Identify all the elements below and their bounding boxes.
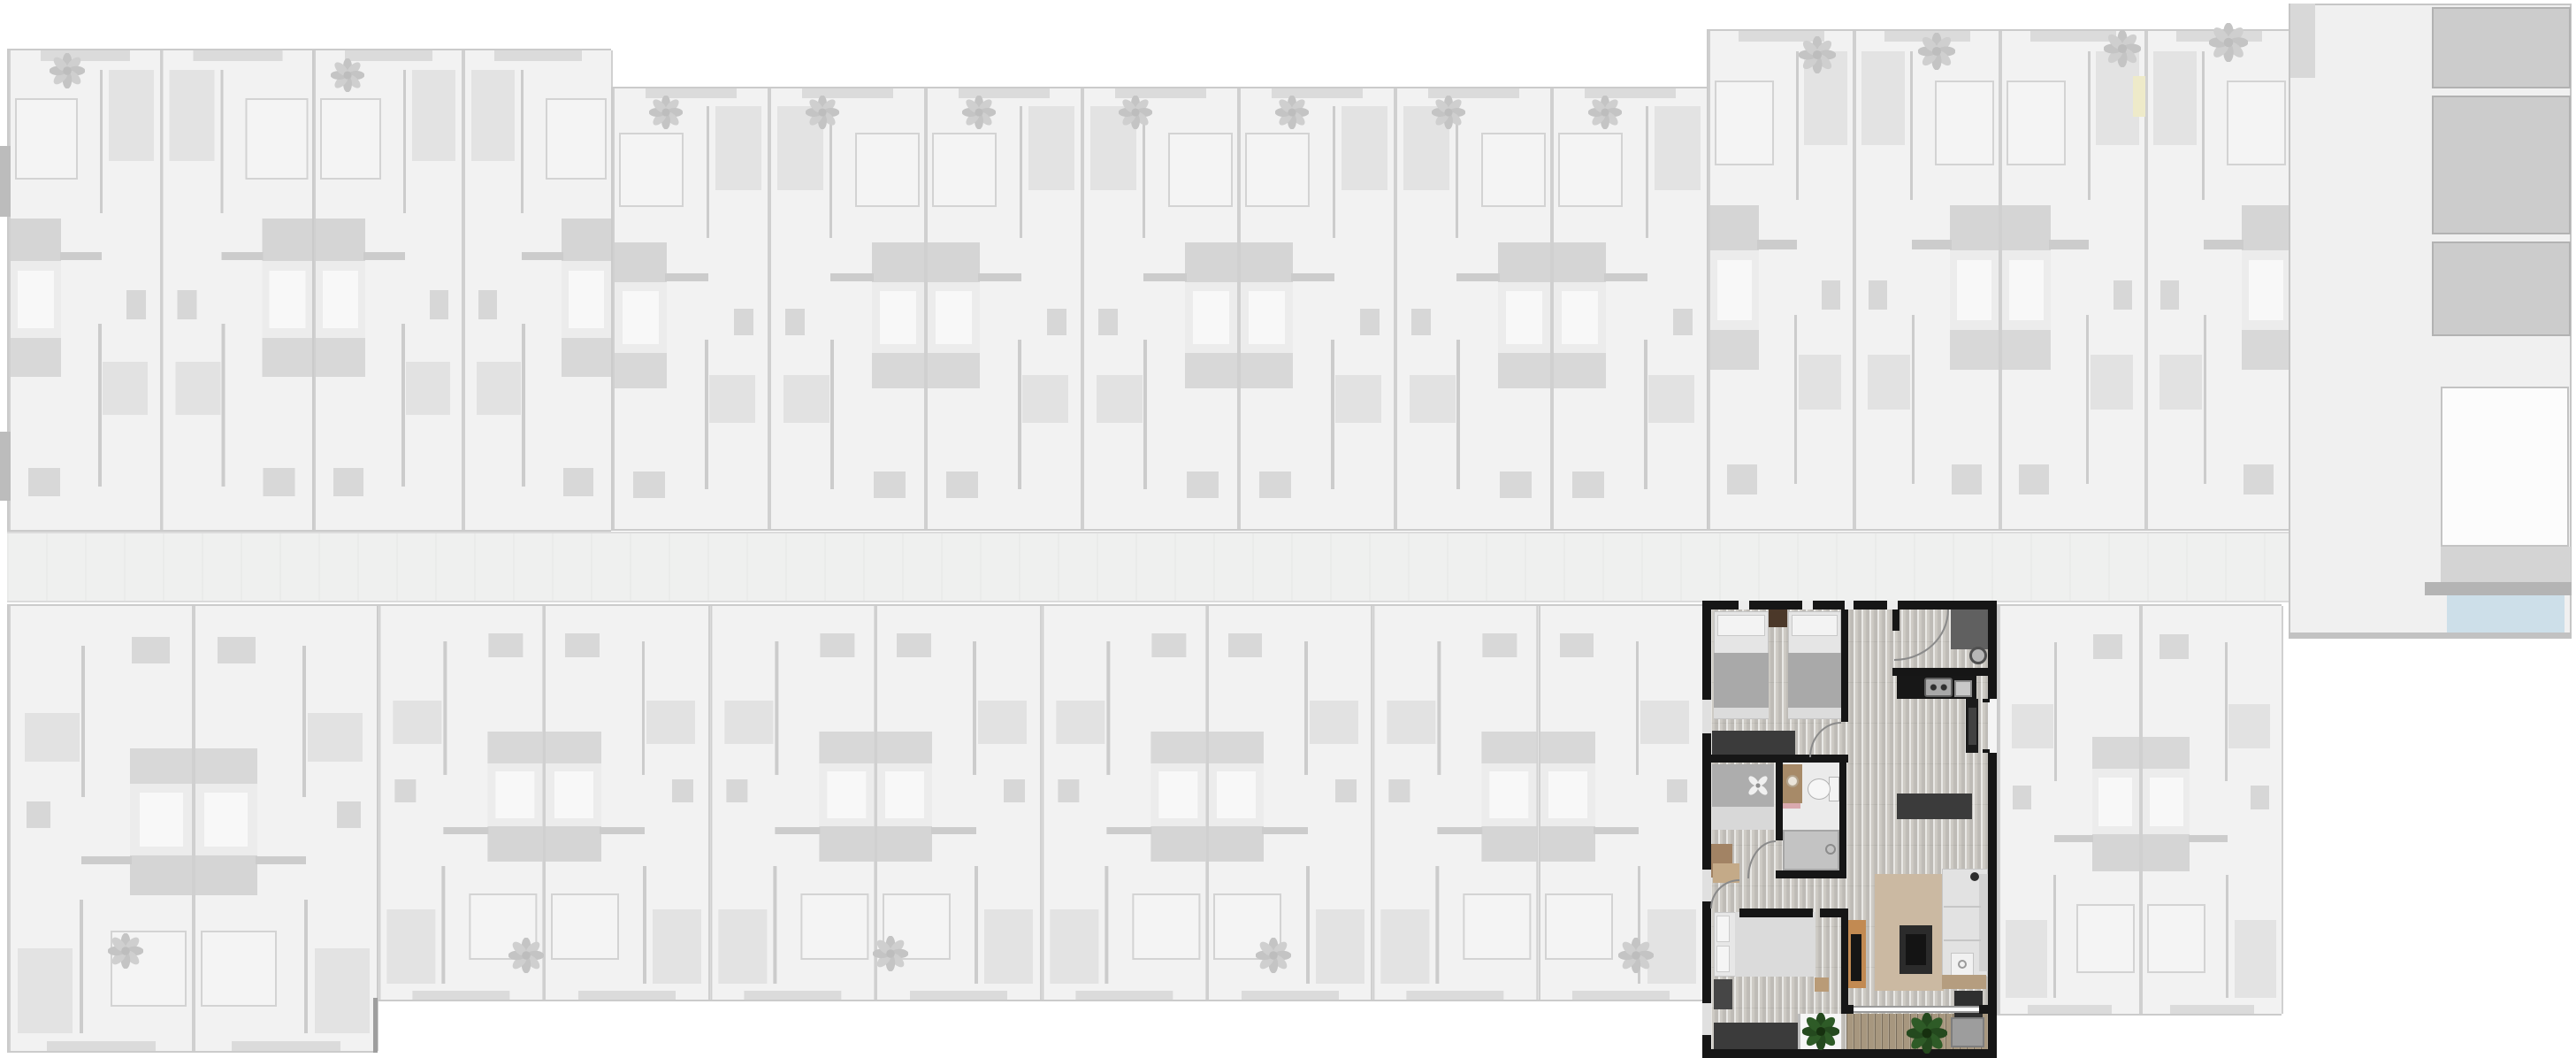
balcony-slider (1854, 1006, 1979, 1013)
faded-wall-v2 (1636, 641, 1640, 775)
faded-wall-v2 (1018, 340, 1020, 489)
edge-wall-dark (373, 998, 378, 1053)
faded-unit (1552, 88, 1708, 529)
faded-bed (169, 70, 214, 161)
bed-b-foot (1788, 708, 1841, 718)
faded-dresser (1150, 826, 1205, 862)
faded-cabinet (2242, 330, 2290, 370)
faded-fixture (395, 779, 417, 803)
faded-dresser (195, 855, 257, 895)
faded-wall-h (444, 827, 489, 834)
window-left-1 (1702, 700, 1711, 733)
faded-wall-h (931, 827, 976, 834)
faded-wall-v2 (1456, 340, 1459, 489)
faded-storage (563, 468, 594, 497)
faded-wall-v1 (304, 900, 308, 1033)
faded-balcony-edge (1572, 991, 1670, 1000)
faded-dresser (1710, 205, 1759, 250)
elevator-core-1 (2432, 7, 2571, 88)
faded-wall-v2 (1912, 315, 1915, 484)
wardrobe-2 (1714, 1023, 1800, 1049)
faded-wall-v2 (2086, 315, 2089, 484)
faded-wall-h (665, 273, 707, 281)
faded-wall-v2 (81, 646, 85, 797)
faded-wall-v1 (2226, 875, 2228, 997)
bed-b-blanket (1788, 653, 1841, 708)
faded-wall-h (830, 273, 873, 281)
faded-wall-v2 (98, 324, 101, 487)
faded-window-box (855, 133, 920, 208)
ledge-tab-1 (0, 146, 11, 217)
faded-window-box (1245, 133, 1310, 208)
faded-dresser (928, 242, 980, 282)
doormat (1951, 1017, 1984, 1047)
faded-wall-v1 (1333, 106, 1335, 238)
faded-storage (1952, 464, 1982, 494)
faded-unit (9, 606, 194, 1051)
faded-fixture (1869, 280, 1888, 310)
faded-wall-h (2049, 240, 2089, 249)
wall-right-lower (1988, 753, 1997, 1058)
faded-unit (2146, 31, 2292, 529)
soap-tray (1783, 803, 1800, 809)
shelf-tan (1942, 975, 1986, 989)
tray-glass (1958, 960, 1967, 969)
faded-bed-2-sheet (1489, 771, 1528, 818)
faded-wall-v1 (403, 70, 406, 214)
faded-bed (412, 70, 456, 161)
faded-balcony-edge (744, 991, 841, 1000)
faded-wall-h (1604, 273, 1647, 281)
faded-bed (715, 106, 761, 190)
faded-balcony-edge (910, 991, 1007, 1000)
wall-balcony-stub-r (1979, 1005, 1988, 1014)
faded-wall-v1 (1306, 866, 1310, 985)
faded-fixture (1673, 309, 1693, 335)
building-section-bottom-3 (1997, 604, 2282, 1016)
bench (1714, 979, 1732, 1009)
faded-storage (633, 471, 665, 498)
faded-fixture (177, 290, 196, 319)
faded-window-box (1481, 133, 1546, 208)
building-section-top-1 (7, 49, 312, 532)
faded-sofa (1387, 701, 1436, 744)
bed-a-foot (1714, 708, 1769, 718)
faded-unit (194, 606, 378, 1051)
accent-window-yellow (2133, 76, 2145, 117)
highlighted-unit[interactable] (1702, 601, 1997, 1058)
faded-plant-icon (1119, 96, 1152, 129)
wall-living-left (1841, 908, 1848, 1007)
faded-storage (821, 633, 855, 657)
faded-plant-icon (806, 96, 839, 129)
faded-bed-2-sheet (323, 271, 358, 328)
faded-bed (653, 909, 701, 985)
faded-storage (2019, 464, 2049, 494)
faded-bed (2006, 920, 2047, 998)
window-left-2 (1702, 870, 1711, 901)
faded-bed (1342, 106, 1387, 190)
faded-fixture (337, 801, 361, 828)
window-top-3 (1845, 601, 1854, 609)
sofa-back (1979, 874, 1988, 971)
faded-balcony-edge (413, 991, 510, 1000)
faded-wall-h (363, 252, 404, 261)
faded-bed-2-sheet (1548, 771, 1587, 818)
faded-cabinet (316, 338, 365, 376)
faded-bed-2-sheet (2098, 778, 2132, 826)
faded-wall-h (1757, 240, 1797, 249)
faded-dresser (615, 242, 667, 282)
faded-plant-icon (1588, 96, 1622, 129)
faded-bed-2-sheet (269, 271, 304, 328)
faded-wall-v2 (1794, 315, 1797, 484)
faded-storage (489, 633, 524, 657)
building-section-bottom-2 (377, 604, 1702, 1001)
faded-plant-icon (1256, 938, 1291, 973)
faded-wall-v2 (973, 641, 976, 775)
faded-cabinet (1554, 353, 1606, 388)
faded-dresser (1554, 242, 1606, 282)
faded-sofa (175, 362, 220, 415)
faded-bed (315, 948, 370, 1033)
faded-plant-icon (1799, 36, 1836, 73)
faded-storage (263, 468, 294, 497)
kitchen-sink (1954, 680, 1972, 697)
faded-building-layer (0, 0, 2576, 1058)
faded-fixture (2013, 786, 2030, 810)
faded-sofa (1022, 375, 1068, 424)
faded-bed (1655, 106, 1701, 190)
bedside-tan (1815, 977, 1829, 992)
faded-unit (162, 50, 315, 530)
faded-fixture (126, 290, 146, 319)
faded-unit (613, 88, 769, 529)
faded-sofa (646, 701, 695, 744)
faded-storage (28, 468, 59, 497)
faded-dresser (1540, 826, 1595, 862)
faded-unit (1854, 31, 2000, 529)
faded-bed-2-sheet (2150, 778, 2183, 826)
faded-dresser (487, 826, 542, 862)
window-top-4 (1887, 601, 1898, 609)
faded-cabinet (546, 732, 600, 763)
faded-dresser (562, 218, 611, 262)
faded-sofa (978, 701, 1027, 744)
wall-closet-right-a (1776, 763, 1783, 840)
faded-bed (471, 70, 516, 161)
faded-sofa (1799, 355, 1841, 410)
faded-wall-v1 (2053, 875, 2056, 997)
faded-wall-h (1594, 827, 1639, 834)
faded-cabinet (872, 353, 924, 388)
faded-unit (1082, 88, 1239, 529)
faded-window-box (932, 133, 997, 208)
patio-divider (1798, 1014, 1800, 1049)
amenity-room (2441, 387, 2569, 547)
faded-bed-2-sheet (1957, 260, 1991, 320)
faded-dresser (2002, 205, 2051, 250)
opening-tick-1 (1983, 699, 1990, 702)
faded-cabinet (1185, 353, 1237, 388)
faded-wall-h (2204, 240, 2243, 249)
faded-cabinet (562, 338, 611, 376)
faded-cabinet (1481, 732, 1536, 763)
balcony-plant-icon (1802, 1013, 1839, 1050)
faded-fixture (1098, 309, 1118, 335)
faded-cabinet (195, 748, 257, 784)
shower-head (1825, 844, 1836, 855)
faded-balcony-edge (1075, 991, 1173, 1000)
tower-notch (2290, 4, 2315, 78)
faded-unit (1239, 88, 1395, 529)
faded-unit (314, 50, 463, 530)
faded-window-box (1545, 893, 1613, 961)
faded-bed (1028, 106, 1074, 190)
faded-bed-2-sheet (204, 793, 248, 846)
faded-storage (897, 633, 931, 657)
faded-unit (1999, 606, 2141, 1014)
faded-cabinet (2002, 330, 2051, 370)
faded-sofa (709, 375, 755, 424)
faded-window-box (15, 98, 78, 180)
faded-bed-2-sheet (880, 291, 917, 344)
bed-2-pillow-1 (1716, 916, 1730, 942)
balcony-plant-icon (1907, 1013, 1947, 1054)
faded-unit (544, 606, 709, 1000)
faded-fixture (734, 309, 753, 335)
wall-bedroom2-top-a (1739, 908, 1813, 917)
faded-fixture (672, 779, 693, 803)
faded-bed-2-sheet (1506, 291, 1543, 344)
faded-bed (984, 909, 1033, 985)
building-section-top-2 (312, 49, 611, 532)
wall-right-upper (1988, 601, 1997, 699)
faded-wall-v2 (775, 641, 778, 775)
faded-wall-h (1912, 240, 1952, 249)
faded-window-box (2227, 80, 2287, 165)
faded-plant-icon (873, 936, 908, 971)
faded-sofa (308, 713, 363, 762)
faded-plant-icon (1275, 96, 1309, 129)
faded-wall-v2 (2204, 315, 2206, 484)
faded-dresser (130, 855, 192, 895)
faded-unit (1042, 606, 1207, 1000)
faded-plant-icon (1432, 96, 1465, 129)
building-section-top-4 (1707, 29, 2290, 531)
faded-wall-v1 (100, 70, 103, 214)
vanity-sink (1786, 775, 1799, 787)
faded-wall-h (978, 273, 1020, 281)
faded-dresser (1241, 242, 1293, 282)
faded-balcony-edge (1242, 991, 1339, 1000)
bed-a-pillow (1717, 615, 1765, 636)
faded-window-box (551, 893, 619, 961)
faded-wall-h (60, 252, 102, 261)
faded-bed-2-sheet (1193, 291, 1230, 344)
faded-cabinet (11, 338, 61, 376)
faded-bed (1861, 51, 1904, 146)
faded-wall-v2 (401, 324, 404, 487)
faded-bed-2-sheet (2249, 260, 2283, 320)
faded-wall-v1 (1105, 866, 1108, 985)
faded-storage (132, 637, 170, 663)
faded-cabinet (1710, 330, 1759, 370)
faded-wall-v2 (1106, 641, 1110, 775)
tv (1851, 934, 1861, 981)
faded-bed-2-sheet (2009, 260, 2044, 320)
faded-wall-v1 (220, 70, 223, 214)
faded-storage (1228, 633, 1263, 657)
faded-wall-v2 (1438, 641, 1441, 775)
faded-sofa (1868, 355, 1910, 410)
faded-balcony-edge (47, 1041, 156, 1051)
faded-cabinet (2143, 737, 2190, 770)
faded-wall-v2 (705, 340, 707, 489)
faded-storage (333, 468, 364, 497)
faded-bed-2-sheet (827, 771, 866, 818)
faded-dresser (546, 826, 600, 862)
window-top-1 (1739, 601, 1749, 609)
faded-bed (1647, 909, 1696, 985)
service-opening (1988, 699, 1997, 753)
faded-dresser (2143, 834, 2190, 870)
faded-dresser (872, 242, 924, 282)
faded-cabinet (262, 338, 312, 376)
faded-wall-h (2189, 835, 2228, 842)
faded-cabinet (130, 748, 192, 784)
faded-fixture (27, 801, 50, 828)
faded-storage (1572, 471, 1604, 498)
faded-fixture (726, 779, 747, 803)
sofa-seam-1 (1944, 906, 1981, 908)
faded-bed (1316, 909, 1364, 985)
faded-wall-h (1291, 273, 1334, 281)
faded-wall-v2 (642, 641, 646, 775)
corridor (7, 532, 2289, 602)
faded-storage (2243, 464, 2274, 494)
faded-wall-v1 (1020, 106, 1022, 238)
faded-storage (1727, 464, 1757, 494)
faded-dresser (2092, 834, 2139, 870)
wall-bath-right (1839, 763, 1846, 878)
faded-fixture (2114, 280, 2132, 310)
faded-window-box (1558, 133, 1623, 208)
stove (1924, 678, 1953, 697)
faded-sofa (1335, 375, 1381, 424)
faded-dresser (1950, 205, 1999, 250)
faded-fixture (1667, 779, 1688, 803)
faded-bed-2-sheet (1217, 771, 1256, 818)
window-left-3 (1702, 1003, 1711, 1035)
wall-entry (1892, 668, 1988, 676)
faded-storage (946, 471, 978, 498)
faded-bed-2-sheet (936, 291, 973, 344)
floorplan-canvas (0, 0, 2576, 1058)
faded-bed (2235, 920, 2276, 998)
faded-sofa (406, 362, 450, 415)
coffee-table-inner (1906, 934, 1926, 965)
faded-wall-v1 (1910, 51, 1913, 201)
faded-wall-h (1106, 827, 1151, 834)
faded-wall-h (1143, 273, 1186, 281)
faded-wall-v1 (1436, 866, 1440, 985)
faded-window-box (201, 931, 277, 1007)
faded-bed-2-sheet (885, 771, 924, 818)
faded-storage (565, 633, 600, 657)
faded-window-box (2076, 904, 2135, 973)
faded-window-box (245, 98, 308, 180)
faded-window-box (2007, 80, 2067, 165)
faded-dresser (262, 218, 312, 262)
faded-wall-h (1438, 827, 1483, 834)
faded-window-box (619, 133, 684, 208)
faded-unit (9, 50, 162, 530)
faded-cabinet (877, 732, 932, 763)
faded-window-box (1464, 893, 1532, 961)
faded-bed-2-sheet (1158, 771, 1197, 818)
window-top-2 (1802, 601, 1813, 609)
wall-left (1702, 601, 1711, 1058)
faded-wall-v2 (444, 641, 447, 775)
faded-window-box (546, 98, 607, 180)
faded-cabinet (487, 732, 542, 763)
faded-bed (109, 70, 154, 161)
faded-bed (386, 909, 435, 985)
faded-wall-h (1456, 273, 1499, 281)
bed-b-pillow (1792, 615, 1838, 636)
faded-sofa (2012, 704, 2053, 749)
faded-bed-2-sheet (18, 271, 53, 328)
faded-sofa (1097, 375, 1143, 424)
faded-balcony-edge (193, 50, 282, 61)
faded-storage (2093, 634, 2122, 659)
faded-balcony-edge (578, 991, 676, 1000)
wing-bottom-wall (2289, 632, 2572, 639)
faded-storage (1259, 471, 1291, 498)
faded-window-box (1168, 133, 1233, 208)
faded-bed-2-sheet (623, 291, 660, 344)
stair-core (2432, 241, 2571, 336)
faded-balcony-edge (494, 50, 582, 61)
faded-wall-v1 (707, 106, 709, 238)
faded-storage (2159, 634, 2189, 659)
faded-storage (1500, 471, 1532, 498)
faded-wall-h (1262, 827, 1307, 834)
faded-plant-icon (1918, 33, 1955, 70)
faded-fixture (1058, 779, 1079, 803)
wall-bath-bottom (1776, 870, 1846, 878)
building-section-top-3 (611, 87, 1707, 531)
faded-window-box (1132, 893, 1200, 961)
faded-unit (2141, 606, 2283, 1014)
opening-tick-2 (1983, 749, 1990, 753)
faded-wall-v2 (2225, 643, 2228, 782)
faded-cabinet (1241, 353, 1293, 388)
faded-bed-2-sheet (140, 793, 183, 846)
faded-unit (1372, 606, 1538, 1000)
faded-sofa (1310, 701, 1358, 744)
counter-strip-inner (1968, 708, 1976, 745)
pool-edge (2425, 582, 2572, 595)
faded-dresser (1185, 242, 1237, 282)
faded-plant-icon (1618, 938, 1654, 973)
faded-fixture (2251, 786, 2268, 810)
faded-wall-v1 (2088, 51, 2091, 201)
faded-wall-h (256, 856, 306, 864)
faded-dresser (11, 218, 61, 262)
faded-storage (218, 637, 256, 663)
